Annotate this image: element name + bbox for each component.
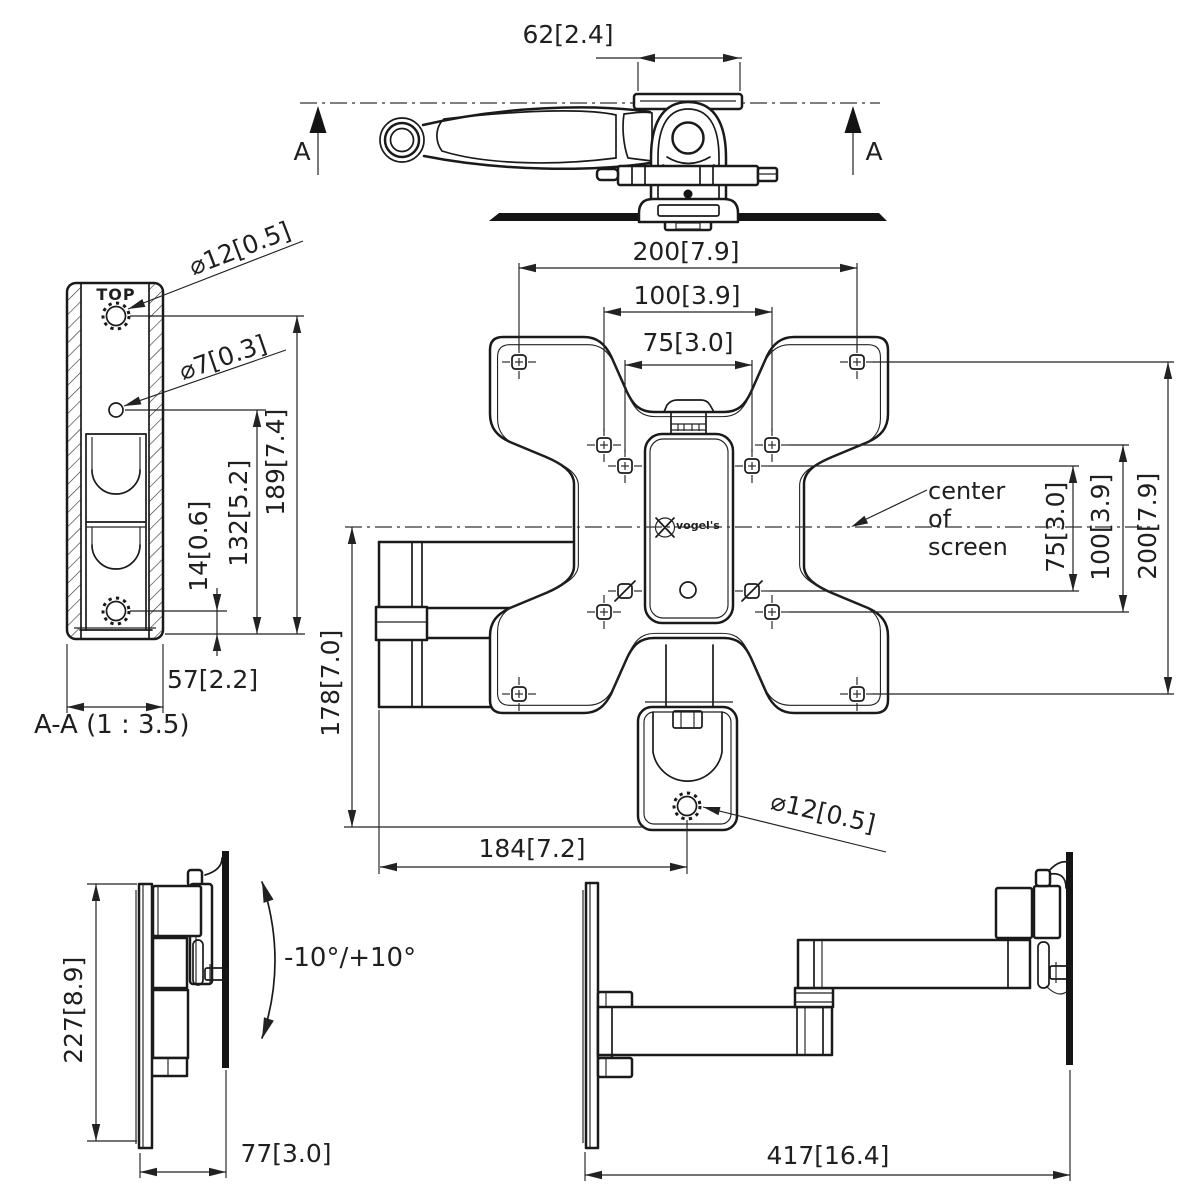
top-marker: TOP bbox=[93, 287, 139, 304]
dim-vesa-200-width: 200[7.9] bbox=[626, 239, 746, 266]
dim-vesa-100-width: 100[3.9] bbox=[627, 283, 747, 310]
wall-line bbox=[1066, 852, 1073, 1065]
tilt-arc bbox=[262, 882, 275, 1038]
extended-side-view bbox=[583, 852, 1073, 1181]
dim-417: 417[16.4] bbox=[753, 1143, 903, 1170]
dim-vesa-100-height: 100[3.9] bbox=[1088, 467, 1115, 587]
dim-227: 227[8.9] bbox=[61, 950, 88, 1070]
section-letter-right: A bbox=[860, 139, 888, 166]
hatch-right bbox=[149, 284, 162, 638]
tv-plate-side bbox=[586, 883, 598, 1148]
dim-189: 189[7.4] bbox=[263, 402, 290, 522]
dim-57: 57[2.2] bbox=[167, 667, 277, 694]
dim-132: 132[5.2] bbox=[226, 453, 253, 573]
center-of-screen-note: center of screen bbox=[928, 477, 1038, 561]
dim-vesa-75-width: 75[3.0] bbox=[628, 330, 748, 357]
section-view-label: A-A (1 : 3.5) bbox=[34, 712, 210, 740]
folded-side-view bbox=[87, 851, 275, 1178]
hatch-left bbox=[68, 284, 81, 638]
top-view bbox=[300, 54, 887, 230]
drawing-linework bbox=[0, 0, 1200, 1200]
brand-label: vogel's bbox=[676, 520, 722, 532]
dim-top-offset: 62[2.4] bbox=[513, 22, 623, 49]
technical-drawing: 62[2.4] A A ⌀12[0.5] TOP ⌀7[0.3] 189[7.4… bbox=[0, 0, 1200, 1200]
tv-plate-side bbox=[139, 884, 152, 1148]
section-letter-left: A bbox=[288, 139, 316, 166]
dim-178: 178[7.0] bbox=[318, 623, 345, 743]
dim-77: 77[3.0] bbox=[236, 1141, 336, 1168]
dim-184: 184[7.2] bbox=[472, 836, 592, 863]
arm-upper bbox=[798, 940, 1030, 988]
dim-vesa-200-height: 200[7.9] bbox=[1135, 466, 1162, 586]
wall-line bbox=[222, 851, 229, 1068]
dim-14: 14[0.6] bbox=[186, 491, 213, 601]
tilt-range-label: -10°/+10° bbox=[284, 945, 444, 973]
dim-vesa-75-height: 75[3.0] bbox=[1043, 467, 1070, 587]
